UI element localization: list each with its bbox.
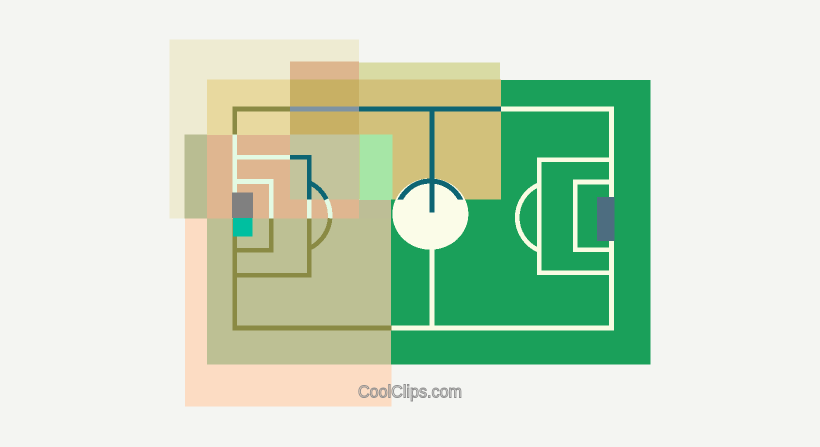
svg-text:CoolClips.com: CoolClips.com (358, 381, 462, 401)
